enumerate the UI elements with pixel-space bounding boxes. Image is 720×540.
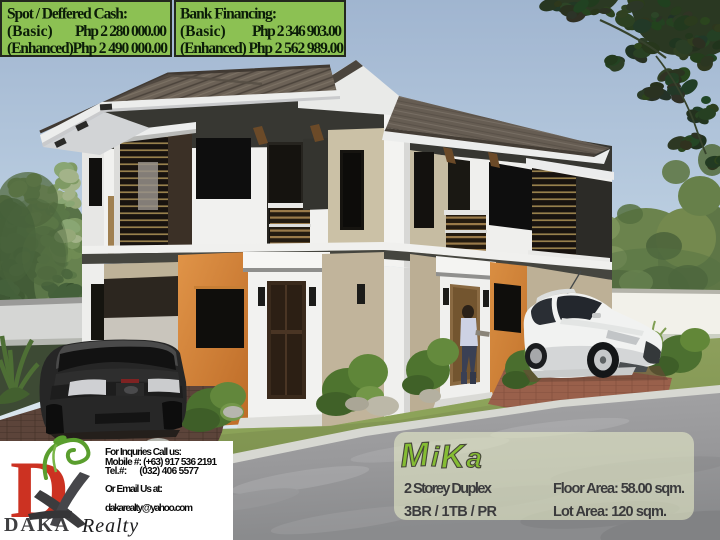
svg-text:Tel.#: (032) 406 5577: Tel.#: (032) 406 5577 bbox=[105, 466, 199, 477]
svg-text:Php 2 346 903.00: Php 2 346 903.00 bbox=[252, 23, 342, 40]
svg-text:Or Email Us at:: Or Email Us at: bbox=[105, 484, 163, 495]
svg-text:a: a bbox=[466, 442, 483, 474]
svg-text:(Enhanced) Php 2 562 989.00: (Enhanced) Php 2 562 989.00 bbox=[180, 40, 344, 57]
svg-text:Lot Area: 120 sqm.: Lot Area: 120 sqm. bbox=[553, 504, 667, 520]
svg-text:M: M bbox=[399, 436, 430, 475]
svg-text:(Enhanced)Php 2 490 000.00: (Enhanced)Php 2 490 000.00 bbox=[7, 40, 168, 57]
svg-text:(Basic): (Basic) bbox=[7, 23, 53, 40]
svg-text:Spot / Deffered Cash:: Spot / Deffered Cash: bbox=[7, 6, 128, 23]
svg-text:Realty: Realty bbox=[81, 515, 139, 537]
svg-text:(Basic): (Basic) bbox=[180, 23, 226, 40]
svg-text:2 Storey Duplex: 2 Storey Duplex bbox=[404, 481, 492, 497]
svg-text:3BR / 1TB / PR: 3BR / 1TB / PR bbox=[404, 504, 498, 520]
svg-text:Floor Area: 58.00 sqm.: Floor Area: 58.00 sqm. bbox=[553, 481, 685, 497]
svg-text:DAKA: DAKA bbox=[4, 514, 71, 536]
svg-text:Php 2 280 000.00: Php 2 280 000.00 bbox=[75, 23, 167, 40]
svg-text:dakarealty@yahoo.com: dakarealty@yahoo.com bbox=[105, 503, 193, 514]
svg-text:K: K bbox=[440, 437, 467, 475]
svg-text:Bank Financing:: Bank Financing: bbox=[180, 6, 277, 23]
